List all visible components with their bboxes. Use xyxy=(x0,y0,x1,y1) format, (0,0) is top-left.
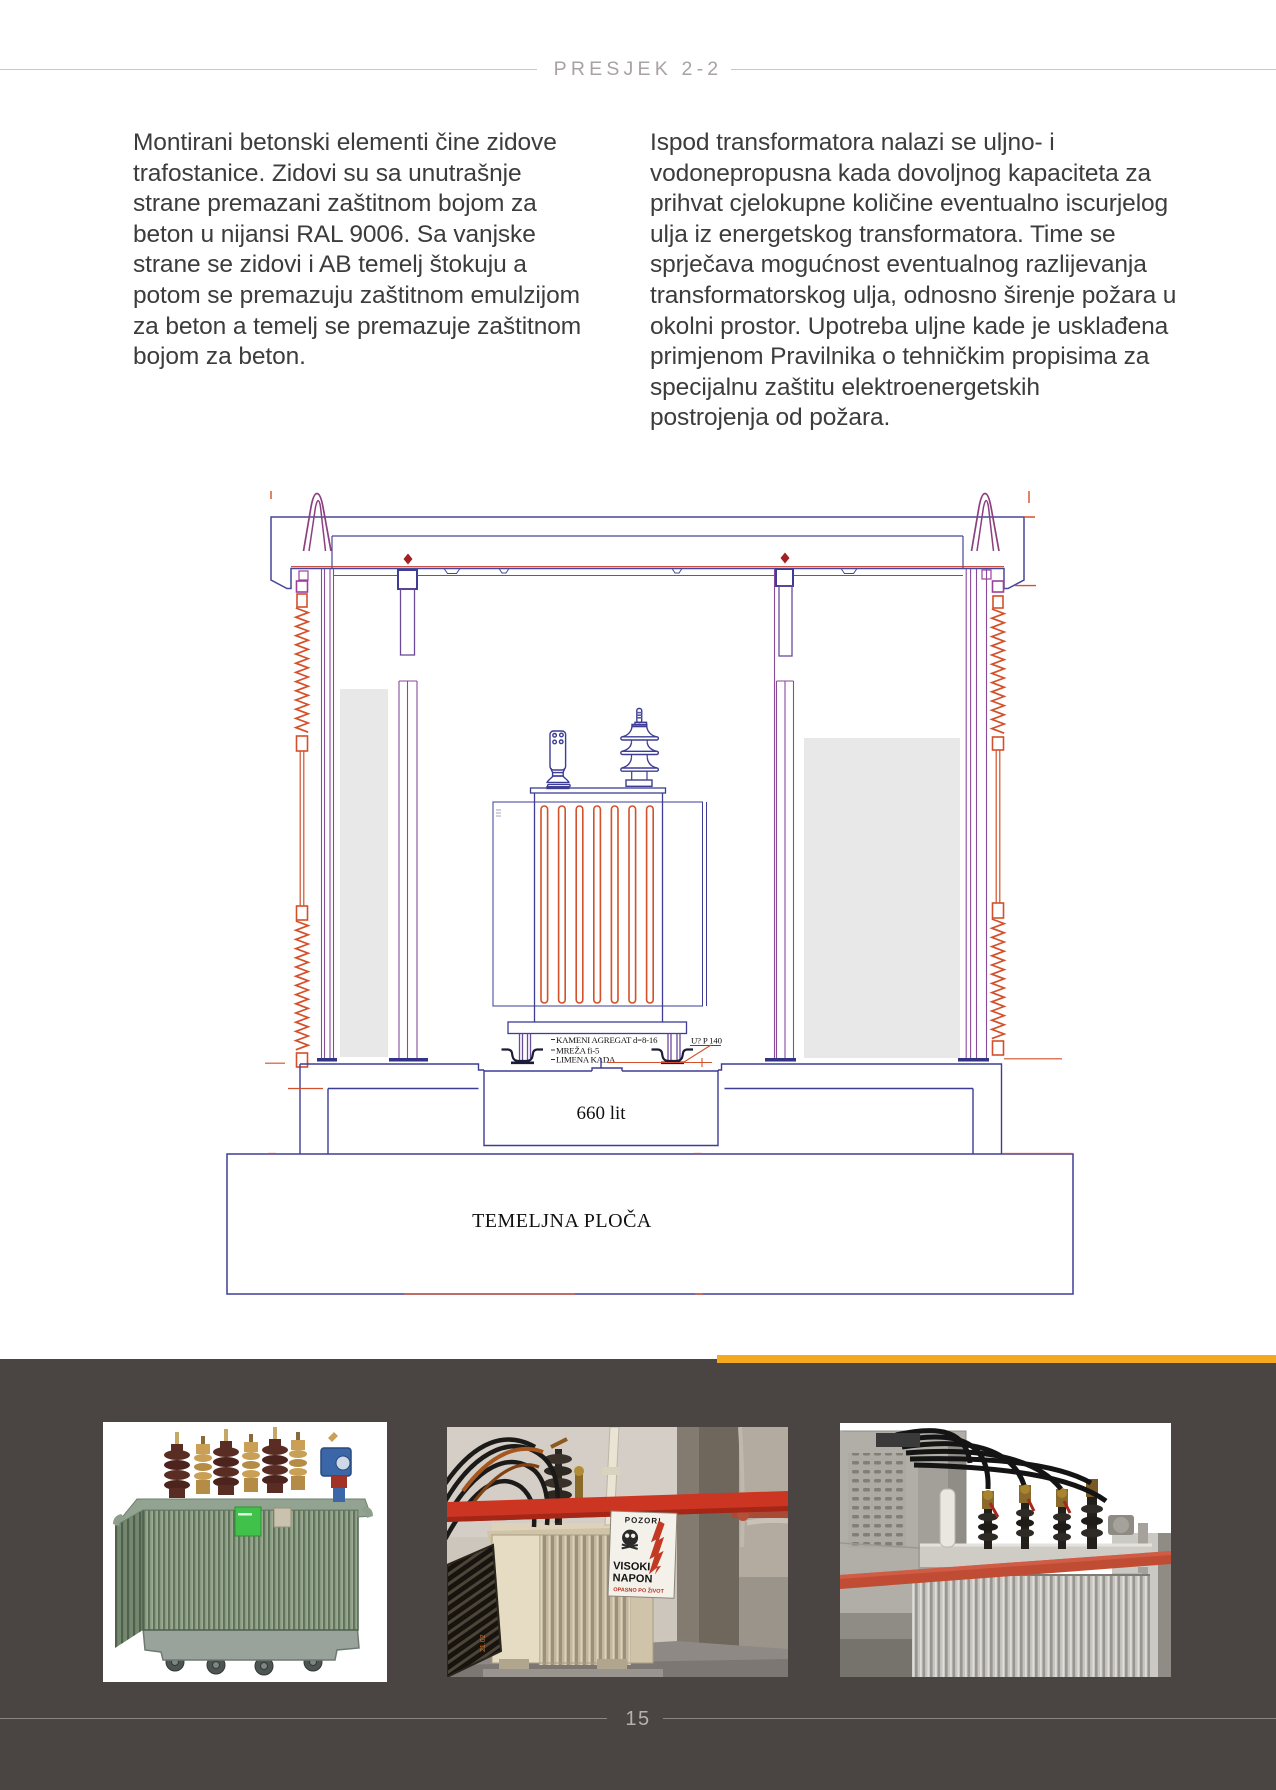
svg-text:TEMELJNA PLOČA: TEMELJNA PLOČA xyxy=(472,1208,652,1232)
svg-text:NAPON: NAPON xyxy=(612,1572,652,1585)
svg-text:660 lit: 660 lit xyxy=(576,1103,626,1124)
svg-text:21.02: 21.02 xyxy=(480,1634,487,1652)
svg-text:U? P 140: U? P 140 xyxy=(691,1036,723,1046)
svg-text:LIMENA KADA: LIMENA KADA xyxy=(556,1055,616,1065)
svg-text:KAMENI AGREGAT d=8-16: KAMENI AGREGAT d=8-16 xyxy=(556,1035,658,1045)
svg-text:POZOR!: POZOR! xyxy=(625,1515,662,1525)
